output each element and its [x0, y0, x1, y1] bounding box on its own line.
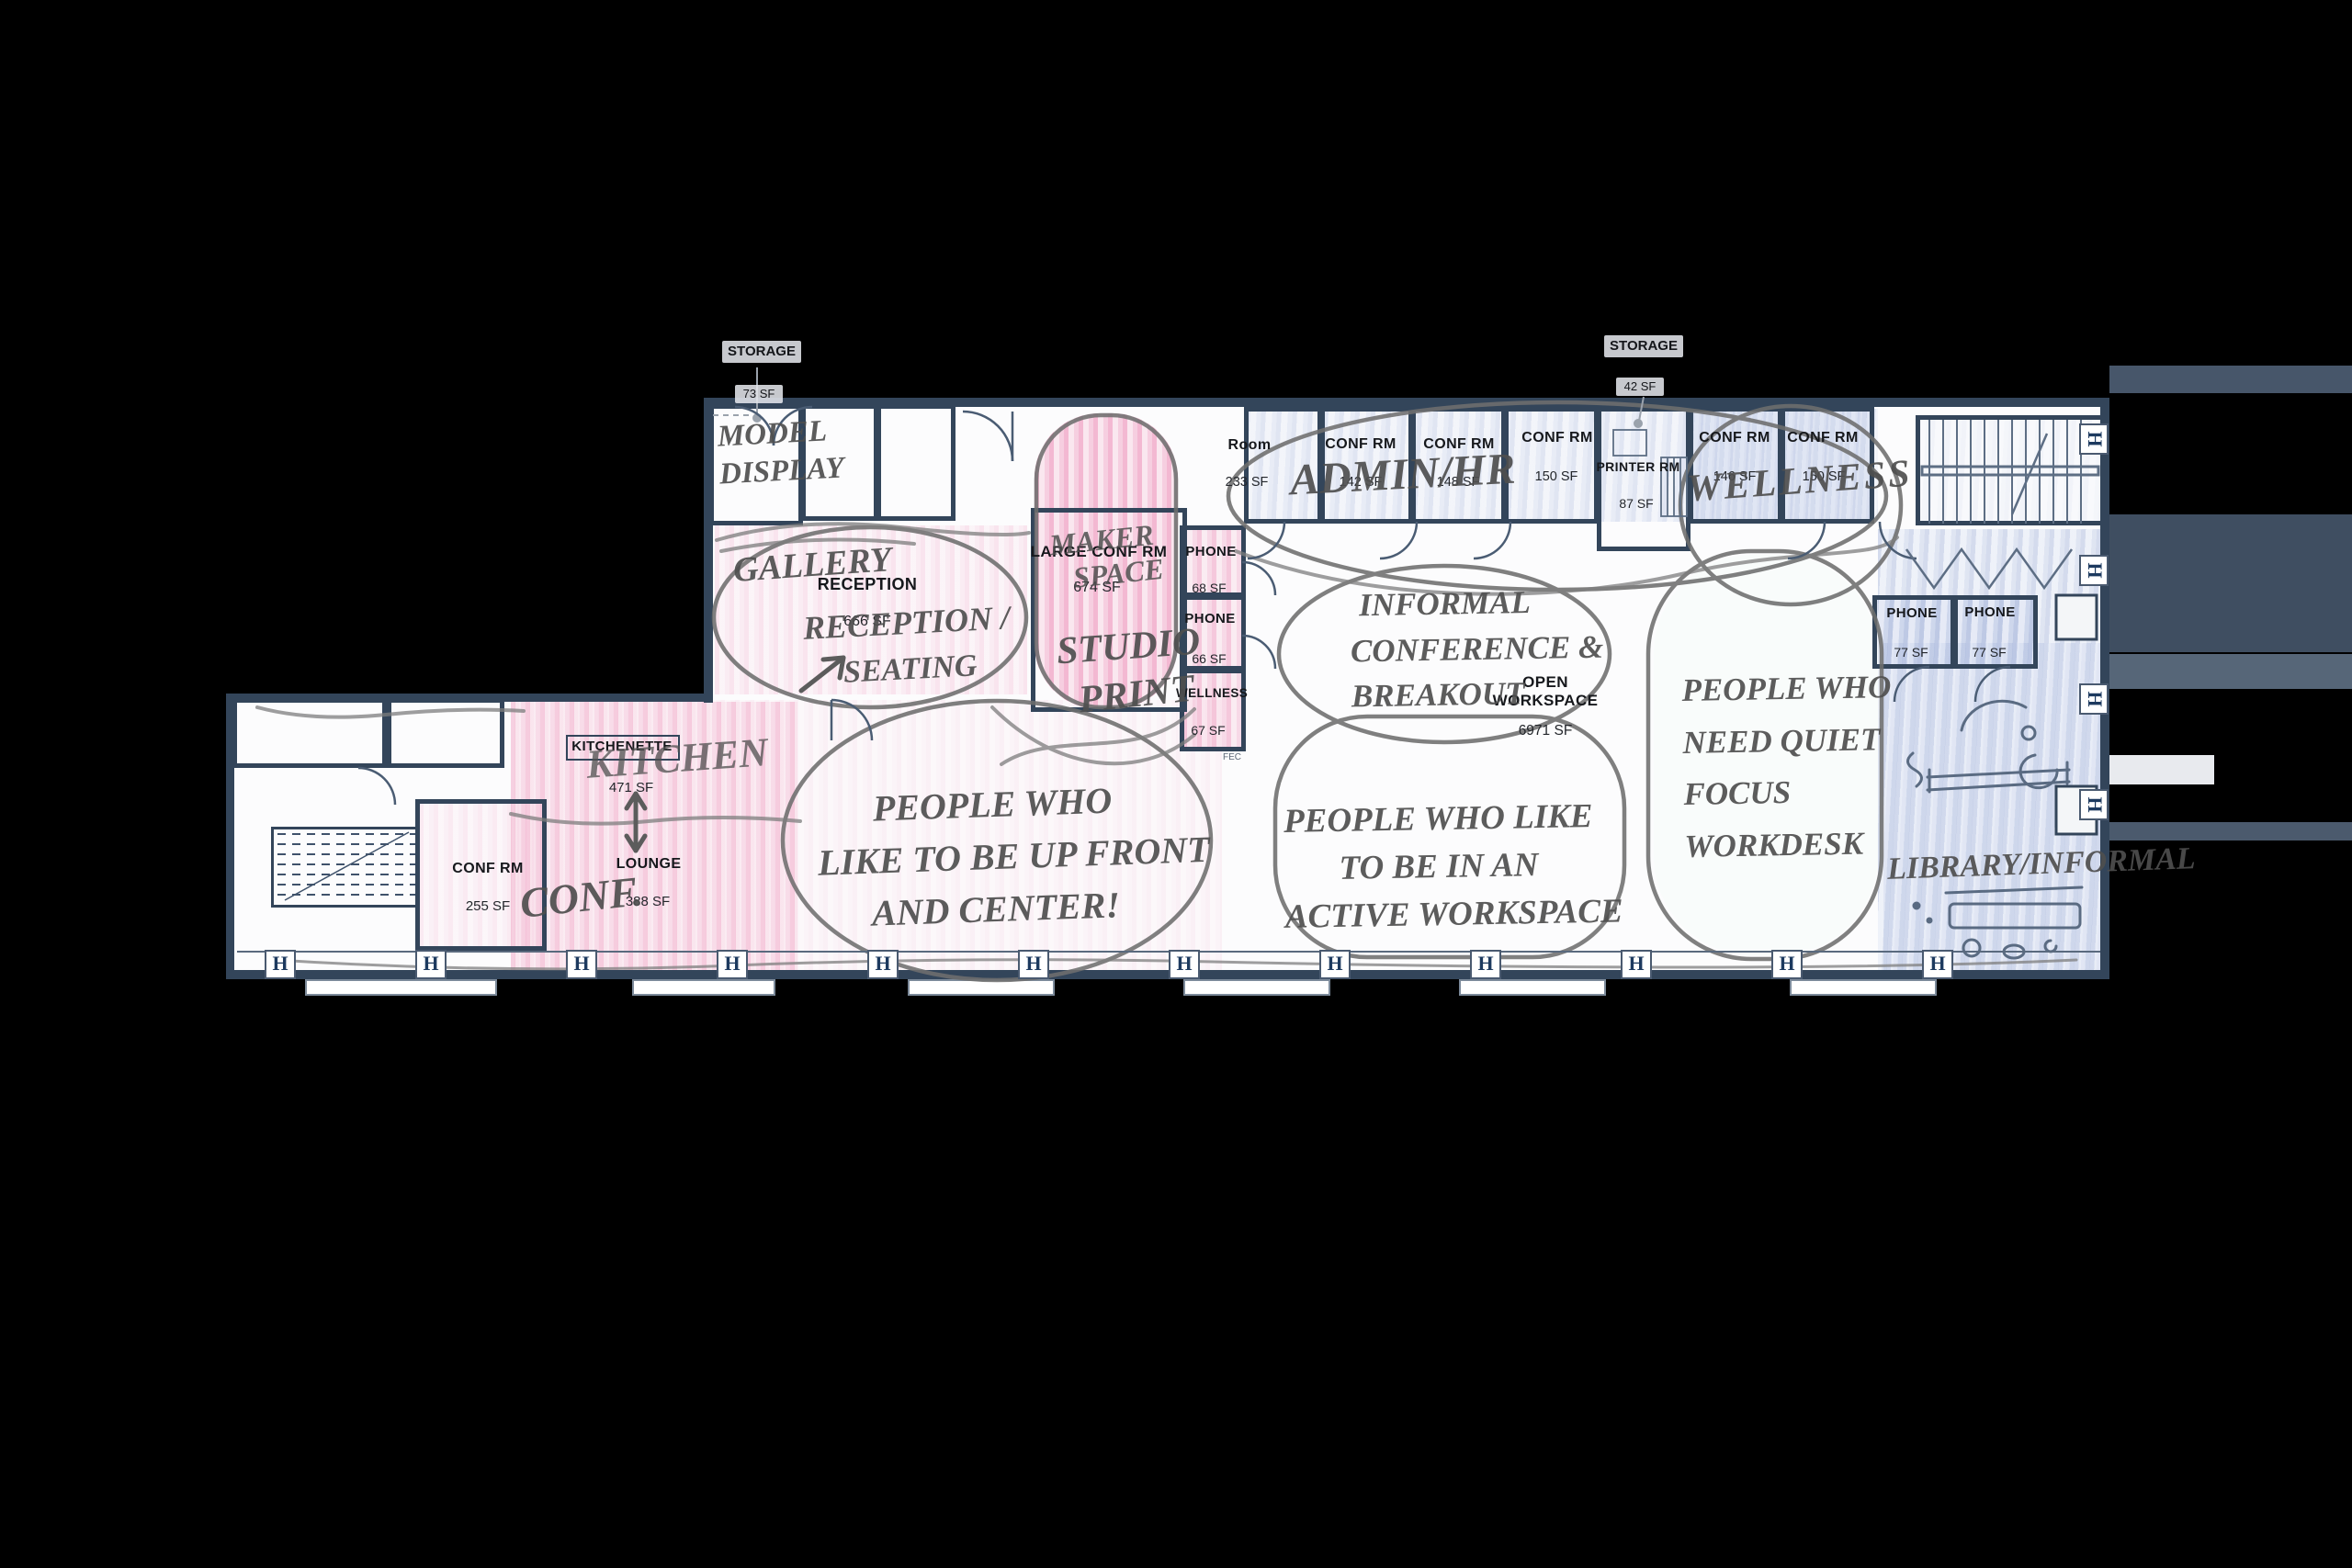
- label-conf-255: CONF RM: [451, 861, 525, 877]
- column-symbol: H: [2079, 789, 2109, 820]
- room-wing-b: [387, 698, 504, 768]
- sf-phone-77a: 77 SF: [1883, 645, 1939, 660]
- hw-line: WORKDESK: [1684, 818, 1894, 874]
- column-symbol: H: [717, 950, 748, 979]
- sf-conf-150a: 150 SF: [1529, 469, 1584, 484]
- window-sill: [1183, 979, 1330, 996]
- column-symbol: H: [265, 950, 296, 979]
- hw-line: INFORMAL: [1350, 579, 1603, 628]
- hw-line: BREAKOUT: [1351, 670, 1604, 719]
- column-symbol: H: [1470, 950, 1501, 979]
- exterior-band: [2109, 514, 2352, 652]
- hw-maker-space: MAKER SPACE: [1047, 516, 1165, 598]
- column-symbol: H: [1018, 950, 1049, 979]
- exterior-band: [2104, 755, 2214, 784]
- column-symbol: H: [1169, 950, 1200, 979]
- column-symbol: H: [1319, 950, 1351, 979]
- wall-top: [704, 398, 2109, 407]
- window-sill: [1459, 979, 1606, 996]
- sf-phone-68: 68 SF: [1182, 581, 1237, 595]
- column-symbol: H: [2079, 683, 2109, 715]
- column-symbol: H: [2079, 423, 2109, 455]
- column-symbol: H: [566, 950, 597, 979]
- column-symbol: H: [1771, 950, 1803, 979]
- hw-informal-conference: INFORMAL CONFERENCE & BREAKOUT: [1350, 579, 1605, 720]
- exterior-band: [2109, 654, 2352, 689]
- hw-conf: CONF.: [517, 861, 646, 934]
- room-printer: [1597, 407, 1690, 551]
- sf-room-233: 233 SF: [1219, 475, 1274, 490]
- label-conf-150a: CONF RM: [1521, 430, 1594, 446]
- sf-open-workspace: 6971 SF: [1509, 723, 1582, 739]
- sf-printer-rm: 87 SF: [1609, 496, 1664, 511]
- room-wing-a: [232, 698, 387, 768]
- hw-admin-hr: ADMIN/HR: [1288, 437, 1517, 513]
- column-symbol: H: [1922, 950, 1953, 979]
- hw-reception-seating-2: SEATING: [842, 643, 978, 695]
- hw-quiet-focus: PEOPLE WHO NEED QUIET FOCUS WORKDESK: [1681, 661, 1894, 874]
- label-conf-146: CONF RM: [1698, 430, 1771, 446]
- label-printer-rm: PRINTER RM: [1594, 459, 1682, 474]
- hw-model-display: MODEL DISPLAY: [717, 412, 845, 494]
- column-symbol: H: [1621, 950, 1652, 979]
- storage-callout-sf: 42 SF: [1616, 378, 1664, 396]
- storage-callout-sf: 73 SF: [735, 385, 783, 403]
- hw-line: PEOPLE WHO LIKE: [1283, 793, 1593, 846]
- wall-bottom: [226, 970, 2109, 979]
- hw-line: FOCUS: [1683, 765, 1894, 821]
- column-symbol: H: [415, 950, 447, 979]
- hw-line: PEOPLE WHO: [1681, 661, 1892, 717]
- window-sill: [1790, 979, 1937, 996]
- hw-active-workspace: PEOPLE WHO LIKE TO BE IN AN ACTIVE WORKS…: [1283, 793, 1595, 941]
- room-closet-b: [876, 404, 955, 521]
- hw-line: ACTIVE WORKSPACE: [1284, 888, 1594, 942]
- hw-line: TO BE IN AN: [1284, 840, 1594, 894]
- sf-conf-255: 255 SF: [460, 898, 515, 914]
- wall-wing-top: [226, 694, 713, 702]
- label-phone-77b: PHONE: [1962, 604, 2018, 620]
- floor-plan: STORAGE 73 SF STORAGE 42 SF RECEPTION 66…: [0, 0, 2352, 1568]
- window-sill: [632, 979, 775, 996]
- hw-line: CONFERENCE &: [1351, 624, 1604, 673]
- shade-library: [1883, 643, 2104, 972]
- storage-callout-label: STORAGE: [722, 341, 801, 363]
- column-symbol: H: [2079, 555, 2109, 586]
- room-stair-right: [1916, 415, 2106, 525]
- exterior-band: [2109, 366, 2352, 393]
- column-symbol: H: [867, 950, 899, 979]
- sf-wellness-67: 67 SF: [1181, 723, 1236, 738]
- hw-line: DISPLAY: [718, 450, 845, 494]
- window-sill: [305, 979, 497, 996]
- label-phone-77a: PHONE: [1884, 605, 1939, 621]
- sf-phone-77b: 77 SF: [1962, 645, 2017, 660]
- storage-callout-label: STORAGE: [1604, 335, 1683, 357]
- hw-line: MODEL: [717, 412, 843, 457]
- room-stair-left: [271, 827, 420, 908]
- hw-line: NEED QUIET: [1682, 714, 1893, 770]
- hw-library-informal: LIBRARY/INFORMAL: [1886, 836, 2196, 892]
- label-room-233: Room: [1222, 437, 1277, 454]
- window-sill: [908, 979, 1055, 996]
- hw-up-front: PEOPLE WHO LIKE TO BE UP FRONT AND CENTE…: [815, 773, 1173, 942]
- label-conf-150b: CONF RM: [1786, 430, 1860, 446]
- label-fec: FEC: [1218, 752, 1246, 762]
- label-phone-68: PHONE: [1183, 544, 1238, 559]
- room-conf-150a: [1504, 407, 1599, 524]
- wall-wing-left: [226, 694, 234, 978]
- wall-left-main: [704, 398, 713, 703]
